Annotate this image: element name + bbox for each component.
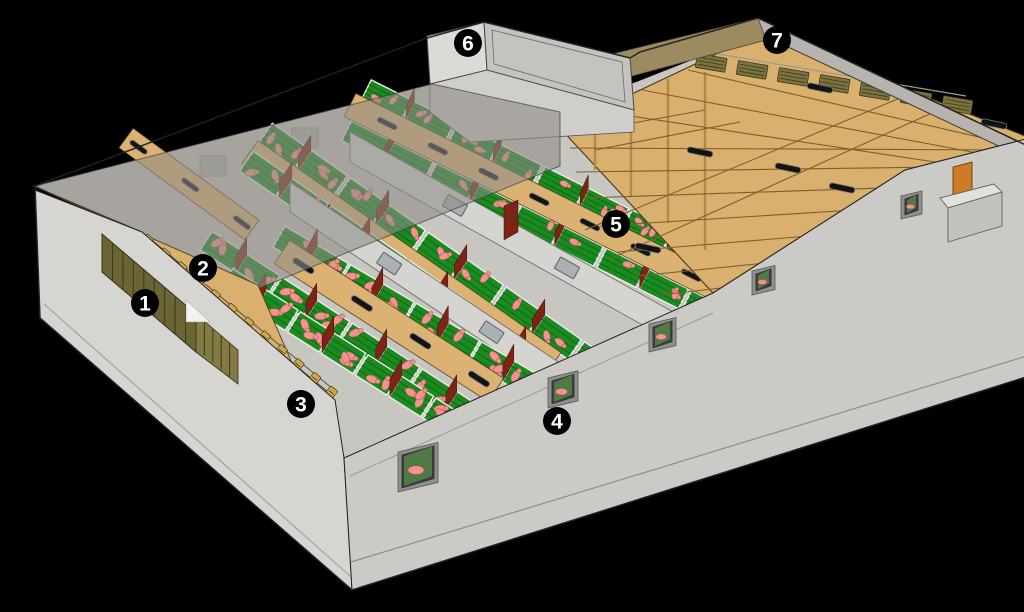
callout-number: 4 xyxy=(551,411,563,434)
callout-marker-3: 3 xyxy=(287,390,315,418)
callout-marker-4: 4 xyxy=(543,407,571,435)
barn-cutaway-figure: 1234567 xyxy=(0,0,1024,612)
wall-window xyxy=(901,191,922,219)
wall-window xyxy=(752,266,775,296)
pig-behind-window xyxy=(656,334,667,340)
barn-cutaway-illustration: 1234567 xyxy=(0,0,1024,612)
pig-behind-window xyxy=(906,204,914,209)
callout-number: 7 xyxy=(771,30,783,53)
callout-number: 6 xyxy=(462,33,474,56)
pig-behind-window xyxy=(556,388,568,395)
wall-window xyxy=(649,318,676,353)
callout-marker-1: 1 xyxy=(131,289,159,317)
callout-marker-5: 5 xyxy=(602,210,630,238)
pig-behind-window xyxy=(758,279,767,284)
callout-marker-7: 7 xyxy=(763,26,791,54)
pig-behind-window xyxy=(408,466,424,475)
callout-number: 3 xyxy=(295,394,307,417)
callout-number: 5 xyxy=(610,214,622,237)
callout-number: 1 xyxy=(139,293,151,316)
callout-marker-6: 6 xyxy=(454,29,482,57)
callout-marker-2: 2 xyxy=(189,254,217,282)
callout-number: 2 xyxy=(197,258,209,281)
